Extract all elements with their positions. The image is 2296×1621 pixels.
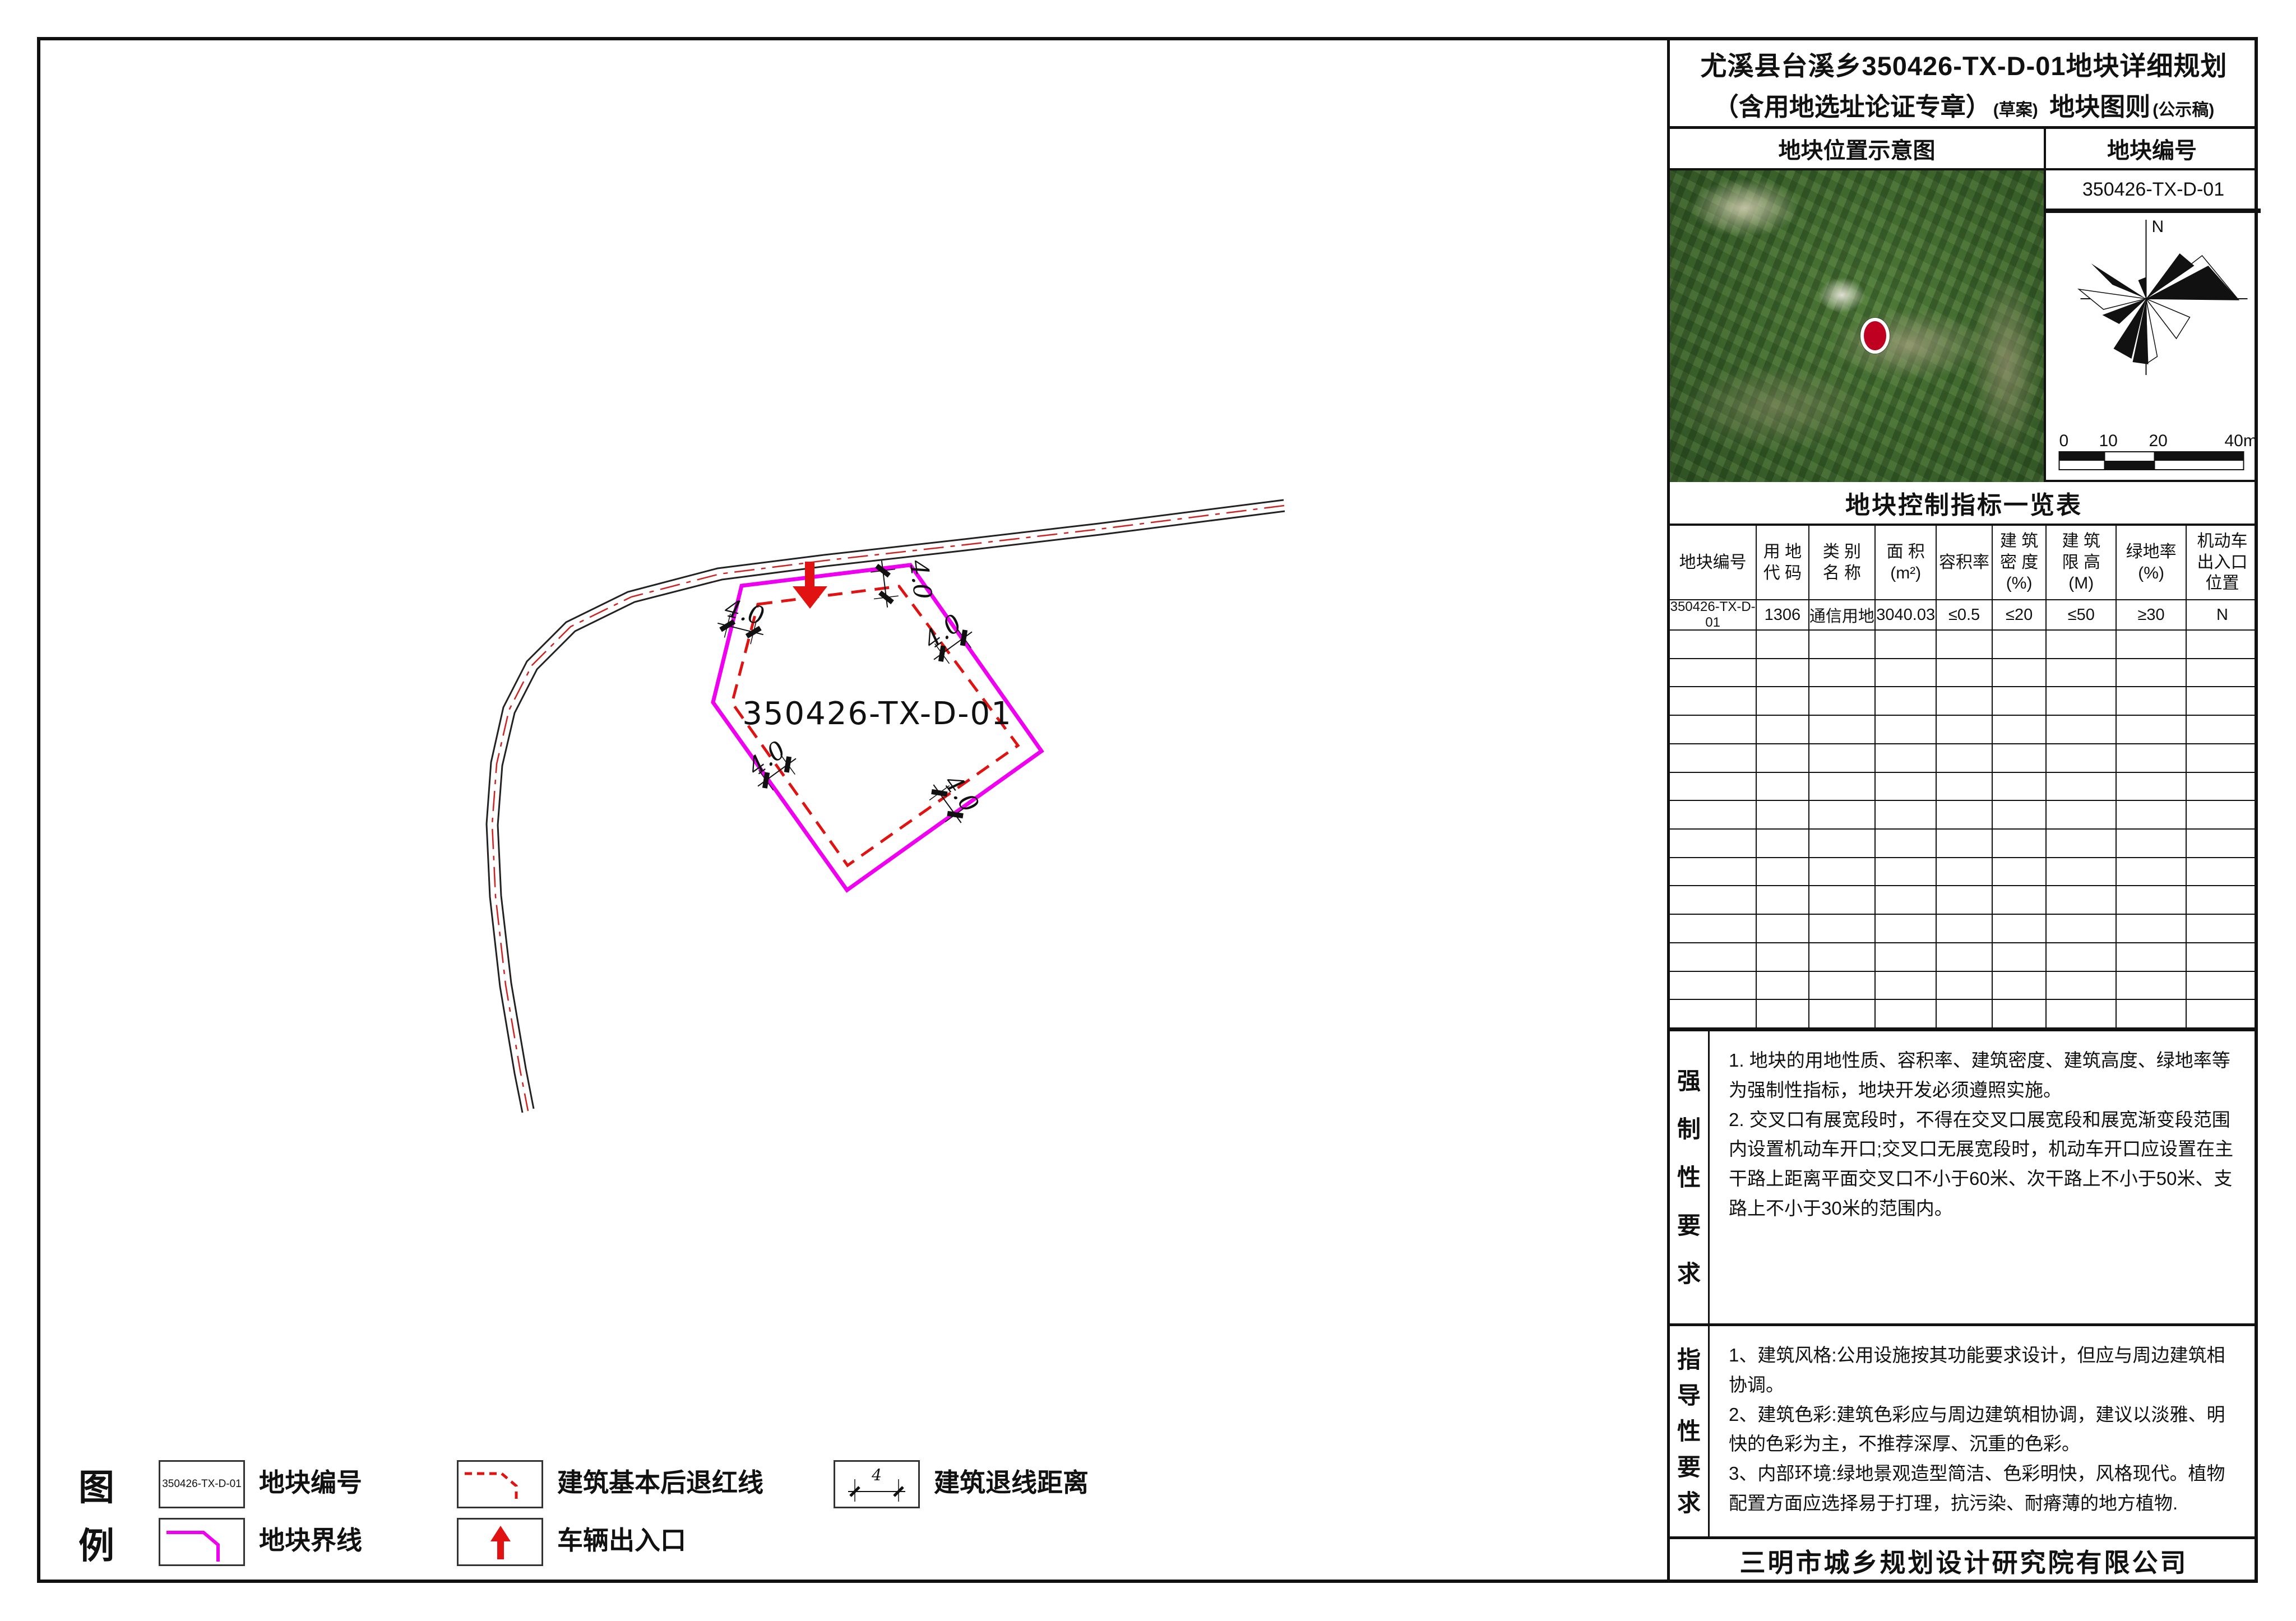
svg-text:20: 20 (2149, 432, 2168, 450)
table-empty-row (1670, 943, 2258, 972)
svg-text:40m: 40m (2225, 432, 2257, 450)
plot-number-header: 地块编号 (2046, 129, 2258, 168)
table-empty-row (1670, 744, 2258, 773)
legend: 图 例 350426-TX-D-01 地块编号 地块界线 建筑基本后退红线 车辆… (67, 1452, 1188, 1584)
mandatory-requirements-section: 强 制 性 要 求 1. 地块的用地性质、容积率、建筑密度、建筑高度、绿地率等为… (1670, 1031, 2258, 1326)
legend-label-parcel-boundary: 地块界线 (259, 1518, 362, 1563)
wind-rose-petals (2079, 253, 2239, 364)
legend-plot-code-text: 350426-TX-D-01 (162, 1478, 242, 1490)
setback-dimension-bottom-right: 4.0 (924, 766, 987, 830)
mandatory-item-2: 2. 交叉口有展宽段时，不得在交叉口展宽段和展宽渐变段范围内设置机动车开口;交叉… (1729, 1105, 2239, 1224)
location-map-header: 地块位置示意图 (1670, 129, 2046, 168)
table-empty-row (1670, 915, 2258, 943)
table-empty-row (1670, 631, 2258, 659)
title-plot-chart: 地块图则 (2049, 86, 2150, 123)
dimension-label: 4.0 (904, 558, 937, 601)
design-institute-footer: 三明市城乡规划设计研究院有限公司 (1670, 1539, 2258, 1583)
table-empty-row (1670, 1000, 2258, 1029)
dimension-label: 4.0 (918, 609, 967, 655)
location-content-row: 350426-TX-D-01 N 0 10 20 4 (1670, 170, 2258, 482)
table-empty-row (1670, 773, 2258, 802)
satellite-location-map (1670, 170, 2046, 482)
site-plan-map: 4.0 4.0 4.0 4.0 4.0 350426-TX-D-01 (40, 40, 1667, 1583)
guidance-requirements-text: 1、建筑风格:公用设施按其功能要求设计，但应与周边建筑相协调。 2、建筑色彩:建… (1710, 1326, 2258, 1536)
dimension-label: 4.0 (938, 769, 984, 818)
title-draft-tag: (草案) (1993, 96, 2038, 121)
sheet-title-line2: （含用地选址论证专章）(草案) 地块图则(公示稿) (1714, 86, 2215, 123)
vehicle-entrance-arrow (793, 562, 827, 609)
table-empty-row (1670, 972, 2258, 1001)
title-subchapter: （含用地选址论证专章） (1714, 86, 1991, 123)
location-header-row: 地块位置示意图 地块编号 (1670, 129, 2258, 170)
vehicle-entrance-arrow-icon (460, 1521, 540, 1563)
legend-swatch-setback-distance: 4 (834, 1460, 920, 1508)
svg-text:0: 0 (2059, 432, 2069, 450)
table-empty-row (1670, 830, 2258, 858)
table-empty-row (1670, 886, 2258, 915)
plot-number-value: 350426-TX-D-01 (2046, 170, 2261, 213)
legend-label-setback-distance: 建筑退线距离 (934, 1460, 1089, 1505)
control-indicators-table: 地块编号用 地 代 码 类 别 名 称面 积 (m²) 容积率建 筑 密 度 (… (1670, 526, 2258, 1031)
table-empty-row (1670, 858, 2258, 887)
legend-title: 图 例 (78, 1458, 114, 1575)
parcel-label: 350426-TX-D-01 (742, 696, 1012, 732)
parcel-boundary-sample-icon (162, 1521, 242, 1563)
table-empty-row (1670, 687, 2258, 716)
wind-rose-compass: N (2046, 217, 2261, 432)
table-empty-row (1670, 659, 2258, 688)
mandatory-item-1: 1. 地块的用地性质、容积率、建筑密度、建筑高度、绿地率等为强制性指标，地块开发… (1729, 1046, 2239, 1105)
legend-swatch-plot-code: 350426-TX-D-01 (159, 1460, 245, 1508)
guidance-item-2: 2、建筑色彩:建筑色彩应与周边建筑相协调，建议以淡雅、明快的色彩为主，不推荐深厚… (1729, 1400, 2239, 1460)
scale-bar: 0 10 20 40m (2046, 432, 2261, 482)
mandatory-requirements-label: 强 制 性 要 求 (1670, 1031, 1710, 1323)
setback-line-sample-icon (460, 1463, 540, 1505)
sheet-title: 尤溪县台溪乡350426-TX-D-01地块详细规划 （含用地选址论证专章）(草… (1670, 40, 2258, 129)
mandatory-requirements-text: 1. 地块的用地性质、容积率、建筑密度、建筑高度、绿地率等为强制性指标，地块开发… (1710, 1031, 2258, 1323)
legend-label-vehicle-entrance: 车辆出入口 (557, 1518, 686, 1563)
legend-swatch-vehicle-entrance (457, 1518, 543, 1566)
compass-north-label: N (2152, 217, 2164, 236)
guidance-item-3: 3、内部环境:绿地景观造型简洁、色彩明快，风格现代。植物配置方面应选择易于打理，… (1729, 1459, 2239, 1518)
setback-dimension-right: 4.0 (915, 606, 979, 669)
legend-swatch-setback-line (457, 1460, 543, 1508)
sheet-title-line1: 尤溪县台溪乡350426-TX-D-01地块详细规划 (1700, 44, 2227, 83)
legend-label-plot-code: 地块编号 (259, 1460, 362, 1505)
control-table-title: 地块控制指标一览表 (1670, 482, 2258, 526)
site-location-marker (1860, 318, 1890, 354)
title-block-panel: 尤溪县台溪乡350426-TX-D-01地块详细规划 （含用地选址论证专章）(草… (1667, 40, 2258, 1583)
guidance-requirements-section: 指 导 性 要 求 1、建筑风格:公用设施按其功能要求设计，但应与周边建筑相协调… (1670, 1326, 2258, 1539)
guidance-requirements-label: 指 导 性 要 求 (1670, 1326, 1710, 1536)
table-empty-row (1670, 801, 2258, 830)
legend-swatch-parcel-boundary (159, 1518, 245, 1566)
setback-dimension-left: 4.0 (715, 593, 771, 647)
table-header-row: 地块编号用 地 代 码 类 别 名 称面 积 (m²) 容积率建 筑 密 度 (… (1670, 526, 2258, 600)
svg-text:4: 4 (871, 1466, 882, 1484)
title-public-tag: (公示稿) (2152, 96, 2214, 121)
table-data-row: 350426-TX-D-011306 通信用地3040.03 ≤0.5≤20 ≤… (1670, 600, 2258, 631)
setback-dimension-top: 4.0 (869, 554, 937, 609)
svg-text:10: 10 (2099, 432, 2118, 450)
setback-distance-sample-icon: 4 (837, 1463, 916, 1505)
legend-label-setback-line: 建筑基本后退红线 (557, 1460, 763, 1505)
guidance-item-1: 1、建筑风格:公用设施按其功能要求设计，但应与周边建筑相协调。 (1729, 1341, 2239, 1400)
table-empty-row (1670, 716, 2258, 744)
